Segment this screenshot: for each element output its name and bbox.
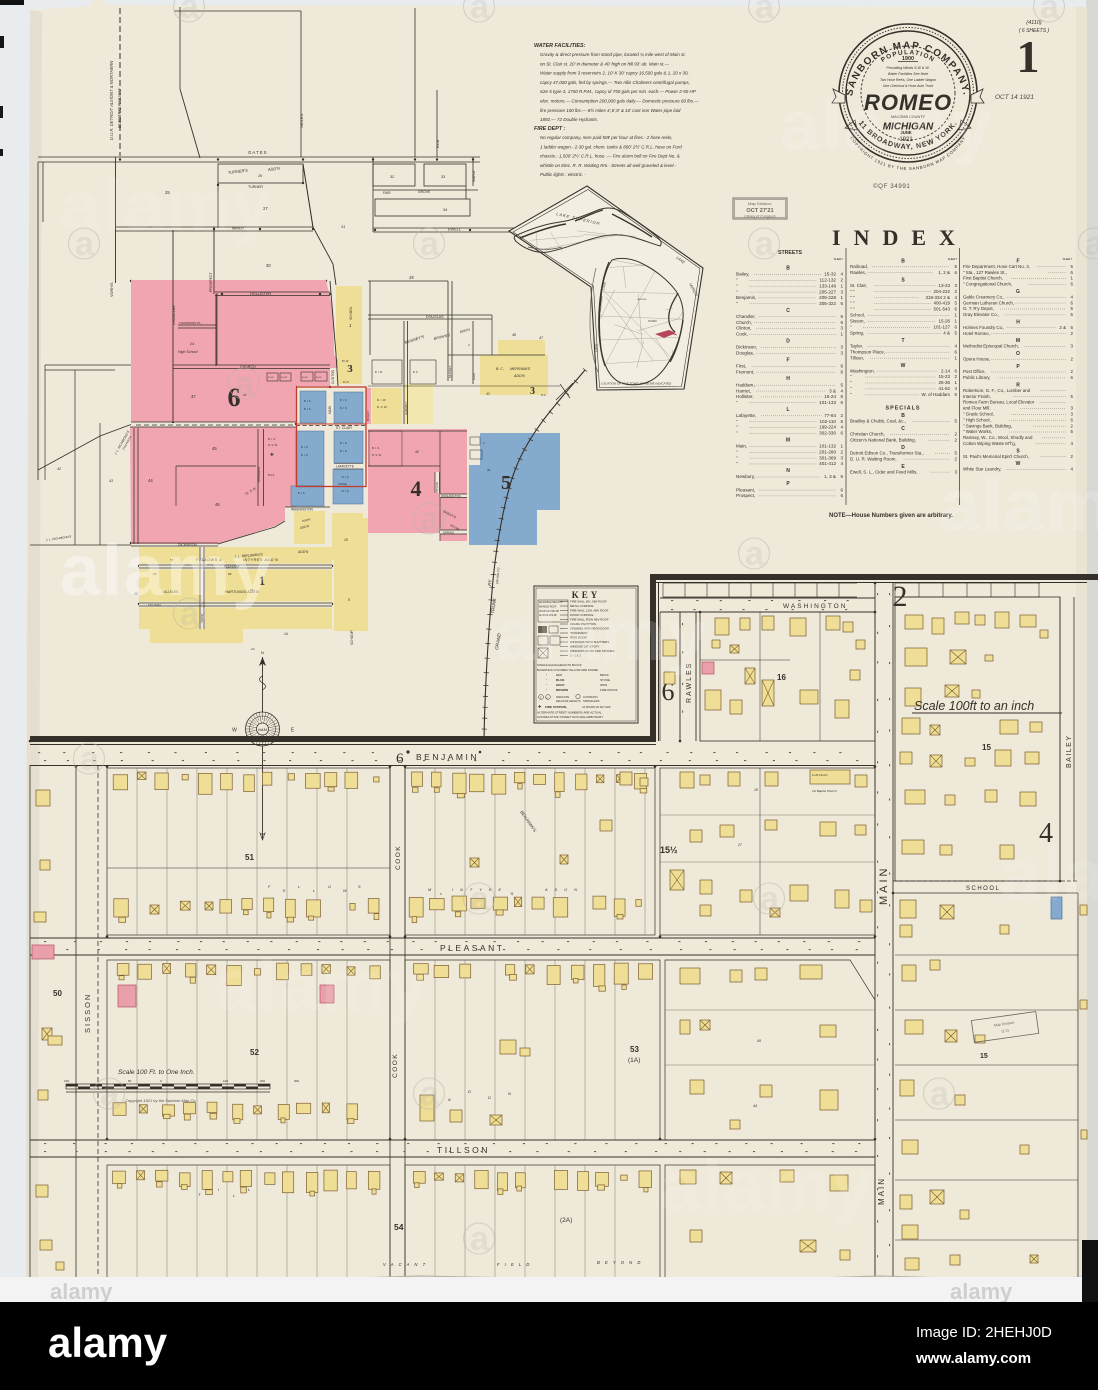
svg-text:B.S.W: B.S.W (281, 377, 288, 379)
svg-text:BAILEY: BAILEY (366, 410, 370, 421)
svg-text:SCHOOL: SCHOOL (349, 306, 353, 320)
svg-text:Water Facilities See Note: Water Facilities See Note (888, 72, 928, 76)
svg-text:1st Baptist Church: 1st Baptist Church (812, 789, 837, 793)
svg-text:6: 6 (840, 369, 843, 374)
svg-text:and Flour Mill,: and Flour Mill, (963, 406, 991, 411)
svg-text:27: 27 (737, 843, 742, 847)
svg-text:F: F (786, 357, 789, 363)
svg-text:Lafayette,: Lafayette, (736, 413, 756, 418)
svg-text:N: N (786, 468, 790, 474)
svg-text:400-419: 400-419 (933, 301, 950, 306)
svg-text:100: 100 (64, 1079, 69, 1083)
svg-text:Bailey,: Bailey, (736, 272, 749, 277)
svg-text:3: 3 (840, 455, 843, 460)
svg-text:D: D (468, 1089, 471, 1094)
svg-text:199-224: 199-224 (819, 425, 836, 430)
svg-text:318-334 2 &: 318-334 2 & (925, 295, 950, 300)
svg-text:Bradley & Chubb, Coal, &c.,: Bradley & Chubb, Coal, &c., (850, 419, 906, 424)
svg-text:SHEET: SHEET (1063, 257, 1073, 261)
svg-text:BAILEY: BAILEY (1066, 734, 1073, 768)
svg-text:AS SHOWN ON KEY MAP: AS SHOWN ON KEY MAP (582, 706, 611, 709)
svg-text:WASHINGTON: WASHINGTON (783, 603, 847, 610)
svg-text:alamy: alamy (950, 1279, 1013, 1304)
svg-text:MUSSEY: MUSSEY (448, 365, 452, 378)
svg-text:1, 2 &: 1, 2 & (938, 270, 950, 275)
svg-text:" ": " " (850, 307, 855, 312)
svg-text:TAYLOR: TAYLOR (435, 482, 439, 493)
svg-text:THOMPSON PL.: THOMPSON PL. (179, 321, 202, 325)
svg-text:Railroad,: Railroad, (850, 264, 868, 269)
svg-text:capcy 47,000 gals, fed by: capcy 47,000 gals, fed by springs.— Two … (540, 80, 690, 85)
svg-text:": " (546, 688, 547, 692)
svg-text:24: 24 (190, 342, 194, 346)
svg-text:B. I. S.: B. I. S. (304, 408, 312, 411)
svg-text:ADD'N: ADD'N (513, 374, 525, 378)
svg-text:OCT 14 1921: OCT 14 1921 (995, 94, 1034, 101)
svg-text:T: T (901, 338, 904, 344)
svg-text:Water supply from 3 reserv: Water supply from 3 reservoirs 2, 10' K … (540, 71, 689, 76)
svg-text:1A: 1A (251, 647, 255, 651)
svg-text:Ramsey, W., Co., Wool, Shodl: Ramsey, W., Co., Wool, Shodly and (963, 435, 1033, 440)
svg-text:FIRE STATION,: FIRE STATION, (545, 705, 567, 709)
svg-text:B. I. S.: B. I. S. (340, 407, 348, 410)
svg-text:B. I. S.: B. I. S. (298, 492, 306, 495)
svg-text:alamy: alamy (1000, 836, 1098, 916)
svg-text:2: 2 (840, 413, 843, 418)
svg-text:D.U.R. DETROIT ALMONT & NO: D.U.R. DETROIT ALMONT & NORTHERN (109, 60, 114, 140)
svg-text:B: B (786, 266, 790, 272)
svg-text:1: 1 (840, 444, 843, 449)
svg-text:43: 43 (486, 392, 490, 396)
svg-text:5: 5 (348, 598, 350, 602)
svg-text:1892.— 72 Double Hydrants.: 1892.— 72 Double Hydrants. (540, 117, 598, 122)
svg-text:SHEET: SHEET (948, 257, 958, 261)
svg-text:5: 5 (350, 630, 352, 634)
svg-text:15: 15 (980, 1053, 988, 1060)
svg-text:501-543: 501-543 (933, 307, 950, 312)
svg-text:Two Hose Reels, One Ladder Wag: Two Hose Reels, One Ladder Wagon (880, 78, 936, 82)
svg-text:SPECIALS: SPECIALS (886, 406, 921, 412)
svg-text:F I E L D: F I E L D (497, 1262, 531, 1267)
svg-text:54: 54 (394, 1222, 404, 1232)
svg-text:Church,: Church, (736, 320, 752, 325)
svg-text:High School: High School (178, 350, 198, 354)
svg-text:Opera House,: Opera House, (963, 356, 990, 361)
svg-text:15-23: 15-23 (938, 374, 950, 379)
svg-text:WATER FACILITIES:: WATER FACILITIES: (534, 43, 586, 49)
svg-text:50: 50 (128, 1079, 132, 1083)
svg-text:B. I. S.: B. I. S. (342, 490, 350, 493)
svg-text:1900: 1900 (902, 56, 914, 62)
svg-text:6: 6 (840, 487, 843, 492)
svg-text:B.I.W: B.I.W (302, 377, 308, 379)
svg-text:15: 15 (344, 538, 348, 542)
svg-text:B.I.W: B.I.W (316, 377, 322, 379)
svg-text:13-23: 13-23 (938, 283, 950, 288)
svg-text:3: 3 (347, 363, 353, 375)
svg-text:Harriet,: Harriet, (736, 388, 751, 393)
svg-text:Washington,: Washington, (850, 368, 875, 373)
svg-text:D. U. R. Waiting Room,: D. U. R. Waiting Room, (850, 456, 897, 461)
svg-text:VORHIS: VORHIS (110, 282, 114, 297)
svg-text:A D O N: A D O N (544, 888, 580, 892)
svg-text:15-32: 15-32 (824, 272, 836, 277)
svg-text:L: L (298, 885, 300, 889)
svg-text:" High School,: " High School, (963, 417, 991, 422)
svg-text:TILLSON: TILLSON (437, 1145, 490, 1155)
svg-text:MAPLE: MAPLE (472, 170, 476, 182)
svg-text:alamy: alamy (495, 596, 709, 676)
svg-text:44: 44 (753, 1104, 757, 1108)
svg-text:6: 6 (840, 364, 843, 369)
svg-text:BLUE: BLUE (556, 678, 564, 682)
svg-text:18: 18 (754, 788, 758, 792)
svg-text:42: 42 (57, 467, 61, 471)
svg-text:on St. Clair st. 20' in dia: on St. Clair st. 20' in diameter & 40' h… (540, 61, 670, 66)
svg-text:alamy: alamy (660, 1146, 874, 1226)
svg-text:" Savings Bank, Building,: " Savings Bank, Building, (963, 423, 1012, 428)
svg-text:31: 31 (341, 225, 345, 229)
svg-text:Public lights : electric. -: Public lights : electric. - (540, 172, 587, 177)
svg-text:FIRE PROOF: FIRE PROOF (600, 688, 618, 692)
svg-text:4: 4 (840, 425, 843, 430)
svg-text:Robertson, G. F., Co., Lumber: Robertson, G. F., Co., Lumber and (963, 388, 1031, 393)
svg-text:OCT 27'21: OCT 27'21 (746, 208, 773, 214)
svg-text:SCHOOL: SCHOOL (966, 886, 1000, 892)
svg-text:6: 6 (840, 400, 843, 405)
svg-text:elec. motors.— Consumption: elec. motors.— Consumption 200,000 gals … (540, 99, 699, 104)
svg-text:4: 4 (840, 272, 843, 277)
svg-text:Map Division,: Map Division, (748, 201, 772, 206)
svg-text:Tillson,: Tillson, (850, 355, 864, 360)
svg-text:Dickinson,: Dickinson, (736, 345, 757, 350)
svg-text:(4110): (4110) (1026, 20, 1042, 26)
svg-text:401-412: 401-412 (819, 461, 836, 466)
svg-text:41-52: 41-52 (938, 386, 950, 391)
svg-text:305-322: 305-322 (819, 301, 836, 306)
svg-text:44: 44 (148, 478, 153, 483)
svg-text:52: 52 (250, 1048, 259, 1057)
svg-text:6: 6 (840, 320, 843, 325)
svg-text:B. I. S.: B. I. S. (340, 399, 348, 402)
svg-text:15½: 15½ (660, 845, 678, 855)
svg-text:Christian Church,: Christian Church, (850, 432, 885, 437)
svg-text:COOK: COOK (392, 1053, 399, 1078)
svg-text:205-227: 205-227 (819, 289, 836, 294)
svg-text:C: C (786, 308, 790, 314)
svg-text:15-24: 15-24 (824, 394, 836, 399)
svg-text:W. of Haddam: W. of Haddam (921, 392, 950, 397)
svg-text:Benjamin,: Benjamin, (736, 295, 756, 300)
svg-text:alamy: alamy (940, 466, 1098, 546)
svg-text:PLEASANT: PLEASANT (440, 943, 504, 953)
svg-text:N: N (261, 650, 264, 655)
svg-text:Cotton Wiping Waste M’f’g,: Cotton Wiping Waste M’f’g, (963, 441, 1016, 446)
svg-text:W: W (343, 889, 347, 893)
svg-text:ELECTRIC RAILWAY: ELECTRIC RAILWAY (117, 87, 122, 128)
svg-text:5: 5 (501, 472, 511, 494)
svg-text:DOUGLAS: DOUGLAS (426, 315, 444, 319)
svg-text:6: 6 (840, 394, 843, 399)
svg-text:NEILEN: NEILEN (299, 113, 304, 128)
svg-text:1: 1 (840, 295, 843, 300)
svg-text:Ewell, S. L., Cider and Feed M: Ewell, S. L., Cider and Feed Mills, (850, 469, 918, 474)
svg-text:WASHINGTON: WASHINGTON (291, 508, 313, 512)
svg-text:STREETS: STREETS (778, 250, 802, 256)
svg-text:6: 6 (840, 431, 843, 436)
svg-text:(2A): (2A) (560, 1217, 572, 1224)
svg-text:ALTERNATE STREET NUMBERS ARE A: ALTERNATE STREET NUMBERS ARE ACTUAL (537, 711, 602, 715)
svg-text:204-222: 204-222 (933, 289, 950, 294)
svg-text:✚: ✚ (270, 452, 274, 457)
svg-text:No regular company, men pai: No regular company, men paid 50¢ per hou… (540, 135, 673, 140)
svg-text:" Water Works,: " Water Works, (963, 429, 992, 434)
svg-text:" Grade School,: " Grade School, (963, 412, 994, 417)
svg-text:Fire Department, Hose Cart No.: Fire Department, Hose Cart No. 3, (963, 264, 1030, 269)
svg-text:EWELL: EWELL (448, 228, 461, 232)
svg-text:4: 4 (411, 476, 422, 501)
svg-text:Taylor,: Taylor, (850, 343, 863, 348)
svg-text:201-280: 201-280 (819, 449, 836, 454)
svg-text:B. I. S.: B. I. S. (340, 442, 348, 445)
svg-text:51: 51 (245, 853, 254, 862)
svg-text:WASHINGTON: WASHINGTON (441, 494, 461, 498)
svg-text:Public Library,: Public Library, (963, 375, 991, 380)
svg-text:4 &: 4 & (943, 331, 950, 336)
svg-text:34: 34 (443, 208, 447, 212)
svg-text:Gray Elevator Co.,: Gray Elevator Co., (963, 312, 999, 317)
svg-text:6: 6 (840, 301, 843, 306)
svg-text:B. S.: B. S. (413, 371, 419, 374)
svg-text:LAFAYETTE: LAFAYETTE (336, 465, 354, 469)
svg-text:33: 33 (441, 175, 445, 179)
svg-text:Copyright 1921 by the Sanborn: Copyright 1921 by the Sanborn Map Co. (125, 1098, 197, 1103)
svg-text:48: 48 (512, 333, 516, 337)
svg-text:" ": " " (850, 289, 855, 294)
svg-text:Citizen's National Bank, Build: Citizen's National Bank, Building, (850, 437, 916, 442)
svg-text:Library of Congress: Library of Congress (744, 215, 776, 219)
svg-text:R. S. W.: R. S. W. (377, 405, 387, 409)
svg-text:Post Office,: Post Office, (963, 369, 986, 374)
svg-text:301-369: 301-369 (819, 455, 836, 460)
svg-text:whistle on Elec. R. R. Wai: whistle on Elec. R. R. Waiting Rm.- Stre… (540, 163, 677, 168)
svg-text:46: 46 (215, 502, 220, 507)
svg-text:1, 3 &: 1, 3 & (824, 474, 836, 479)
svg-text:MAIN: MAIN (877, 1177, 886, 1205)
svg-text:200: 200 (260, 1079, 265, 1083)
svg-text:Sisson,: Sisson, (850, 319, 865, 324)
svg-text:Gable Creamery Co.,: Gable Creamery Co., (963, 294, 1004, 299)
svg-text:W: W (232, 728, 237, 734)
svg-text:Detroit Edison Co., Transforme: Detroit Edison Co., Transformer Sta., (850, 450, 924, 455)
svg-text:O: O (328, 885, 331, 889)
svg-text:size 5 type 3, 1750 R.P.M.: size 5 type 3, 1750 R.P.M., capcy of 750… (540, 89, 696, 94)
svg-text:101-127: 101-127 (933, 325, 950, 330)
svg-text:School,: School, (850, 313, 865, 318)
svg-text:PROSPECT: PROSPECT (209, 271, 213, 292)
svg-text:Prospect,: Prospect, (736, 493, 755, 498)
svg-text:32: 32 (390, 175, 394, 179)
svg-text:c: c (440, 892, 442, 896)
svg-text:45: 45 (212, 446, 217, 451)
svg-text:Methodist Episcopal Church,: Methodist Episcopal Church, (963, 344, 1019, 349)
svg-text:2: 2 (840, 278, 843, 283)
svg-text:Pleasant,: Pleasant, (736, 487, 755, 492)
svg-text:Chandler,: Chandler, (736, 314, 756, 319)
svg-text:B. I. W.: B. I. W. (375, 371, 383, 374)
svg-text:alamy: alamy (60, 531, 274, 611)
svg-text:SISSON: SISSON (83, 993, 92, 1033)
svg-text:Image ID: 2HEHJ0D: Image ID: 2HEHJ0D (916, 1324, 1052, 1341)
svg-text:3: 3 (840, 326, 843, 331)
svg-text:Fremont,: Fremont, (736, 369, 754, 374)
svg-text:STONE: STONE (600, 678, 610, 682)
svg-text:(8): (8) (487, 468, 490, 472)
svg-text:L: L (786, 407, 789, 413)
svg-text:B. C.: B. C. (496, 367, 504, 371)
svg-text:Hollister,: Hollister, (736, 394, 754, 399)
svg-text:50: 50 (53, 989, 62, 998)
svg-text:M: M (786, 437, 790, 443)
svg-text:1A: 1A (284, 632, 288, 636)
svg-text:" ": " " (850, 295, 855, 300)
svg-text:LAKE: LAKE (594, 343, 598, 352)
svg-text:FIRE DEPT :: FIRE DEPT : (534, 126, 566, 132)
svg-text:B. I. S.: B. I. S. (342, 476, 350, 479)
svg-text:Romeo Farm Bureau, Local Elev: Romeo Farm Bureau, Local Elevator (963, 400, 1035, 405)
svg-text:6: 6 (396, 751, 404, 767)
svg-text:2-14: 2-14 (941, 368, 951, 373)
svg-text:alamy: alamy (780, 86, 994, 166)
svg-text:HOLLISTER: HOLLISTER (250, 292, 271, 296)
svg-text:Haddam,: Haddam, (736, 382, 755, 387)
svg-text:53: 53 (630, 1045, 639, 1054)
svg-text:1: 1 (840, 332, 843, 337)
svg-text:B: B (901, 259, 905, 265)
svg-text:6: 6 (840, 474, 843, 479)
svg-text:6: 6 (840, 493, 843, 498)
svg-text:Spring,: Spring, (850, 331, 864, 336)
svg-text:ELM: ELM (435, 140, 440, 148)
svg-text:©QF 34991: ©QF 34991 (873, 183, 910, 190)
svg-text:Thompson Place,: Thompson Place, (850, 349, 885, 354)
svg-text:CHANDLER: CHANDLER (172, 305, 176, 325)
svg-text:2 &: 2 & (1059, 325, 1066, 330)
svg-text:5: 5 (840, 382, 843, 387)
svg-text:Douglas,: Douglas, (736, 350, 754, 355)
svg-text:HARRIET: HARRIET (404, 402, 408, 415)
svg-text:alamy: alamy (48, 1319, 168, 1366)
svg-text:30: 30 (266, 263, 271, 268)
svg-text:4: 4 (840, 461, 843, 466)
svg-text:W: W (901, 363, 906, 369)
svg-text:INDICATE: INDICATE (556, 695, 569, 699)
svg-text:B.S.S.: B.S.S. (268, 474, 275, 477)
svg-text:101-133: 101-133 (819, 400, 836, 405)
svg-text:chassis.- 1,500' 2½' C.R.L.: chassis.- 1,500' 2½' C.R.L. hose .— Fire… (540, 153, 680, 159)
svg-text:300: 300 (294, 1079, 299, 1083)
svg-text:112-132: 112-132 (819, 278, 836, 283)
svg-text:'S: 'S (510, 892, 514, 896)
svg-text:3: 3 (530, 386, 535, 397)
svg-text:Newbury,: Newbury, (736, 474, 755, 479)
svg-text:6: 6 (840, 314, 843, 319)
svg-text:C: C (901, 426, 905, 432)
svg-text:L: L (233, 1193, 235, 1198)
svg-text:Interior Finish,: Interior Finish, (963, 394, 991, 399)
svg-text:ROMEO: ROMEO (648, 320, 657, 323)
svg-text:100: 100 (223, 1079, 228, 1083)
svg-text:EAST: EAST (472, 372, 476, 380)
svg-text:TREMONT: TREMONT (257, 466, 261, 483)
svg-text:3: 3 (840, 350, 843, 355)
svg-text:alamy: alamy (50, 1279, 113, 1304)
svg-text:5: 5 (840, 419, 843, 424)
svg-text:": " (546, 683, 547, 687)
svg-text:NOTE—House Numbers given are a: NOTE—House Numbers given are arbitrary. (829, 513, 953, 519)
svg-text:B. I. S.: B. I. S. (301, 446, 309, 449)
svg-text:St. Clair,: St. Clair, (850, 283, 867, 288)
svg-text:D: D (488, 1095, 491, 1100)
svg-text:H: H (786, 376, 790, 382)
svg-text:302-330: 302-330 (819, 431, 836, 436)
svg-text:Gravity & direct pressure from: Gravity & direct pressure from stand pip… (540, 52, 686, 57)
svg-text:4: 4 (840, 388, 843, 393)
svg-text:133-148: 133-148 (819, 283, 836, 288)
svg-text:German Lutheran Church,: German Lutheran Church, (963, 300, 1014, 305)
svg-text:3: 3 (840, 345, 843, 350)
svg-text:D: D (901, 445, 905, 451)
svg-text:(1A): (1A) (628, 1057, 640, 1064)
svg-text:N: N (508, 1091, 511, 1096)
svg-text:alamy: alamy (215, 946, 429, 1026)
svg-text:LOCATION OF THIS TOWN AS ABOVE: LOCATION OF THIS TOWN AS ABOVE INDICATED (601, 382, 672, 386)
svg-text:B. I. S.: B. I. S. (301, 454, 309, 457)
svg-text:205-228: 205-228 (819, 295, 836, 300)
svg-text:V A C A N T: V A C A N T (383, 1262, 427, 1267)
svg-text:G: G (1016, 289, 1020, 295)
svg-text:Holmes Foundry Co.,: Holmes Foundry Co., (963, 325, 1004, 330)
svg-text:Main,: Main, (736, 444, 747, 449)
svg-text:fire pressure 100 lbs.— 8½: fire pressure 100 lbs.— 8½ miles 4',6',8… (540, 107, 681, 113)
svg-text:": " (546, 678, 547, 682)
svg-text:B. I. S.: B. I. S. (304, 400, 312, 403)
svg-text:3 &: 3 & (829, 388, 836, 393)
svg-text:R. I. W.: R. I. W. (377, 398, 386, 402)
svg-text:IRON: IRON (600, 683, 607, 687)
svg-text:45: 45 (757, 1039, 761, 1043)
svg-text:B.I.W: B.I.W (268, 377, 274, 379)
svg-text:1 ladder wagon.- 2-30 gal.: 1 ladder wagon.- 2-30 gal. chem. tanks &… (540, 143, 682, 149)
svg-text:3: 3 (840, 289, 843, 294)
svg-text:First,: First, (736, 364, 746, 369)
svg-text:St. Paul's Memorial Epis'l Chu: St. Paul's Memorial Epis'l Church, (963, 454, 1029, 459)
svg-text:Scale 100ft to an inch: Scale 100ft to an inch (914, 699, 1034, 713)
svg-text:INDEX: INDEX (832, 225, 968, 250)
svg-text:1: 1 (1017, 31, 1040, 82)
svg-text:15: 15 (982, 743, 991, 752)
svg-text:FAIR: FAIR (383, 191, 391, 195)
svg-text:25-35: 25-35 (938, 380, 950, 385)
svg-text:16: 16 (777, 673, 786, 682)
svg-text:ST. CLAIR: ST. CLAIR (336, 426, 352, 430)
svg-text:35: 35 (409, 275, 414, 280)
svg-text:B E Y O N D: B E Y O N D (597, 1260, 642, 1265)
svg-text:Clinton,: Clinton, (736, 326, 752, 331)
svg-text:" ": " " (850, 301, 855, 306)
svg-text:" Sta., 127 Rawles St: " Sta., 127 Rawles St., (963, 270, 1007, 275)
svg-text:43: 43 (109, 479, 113, 483)
